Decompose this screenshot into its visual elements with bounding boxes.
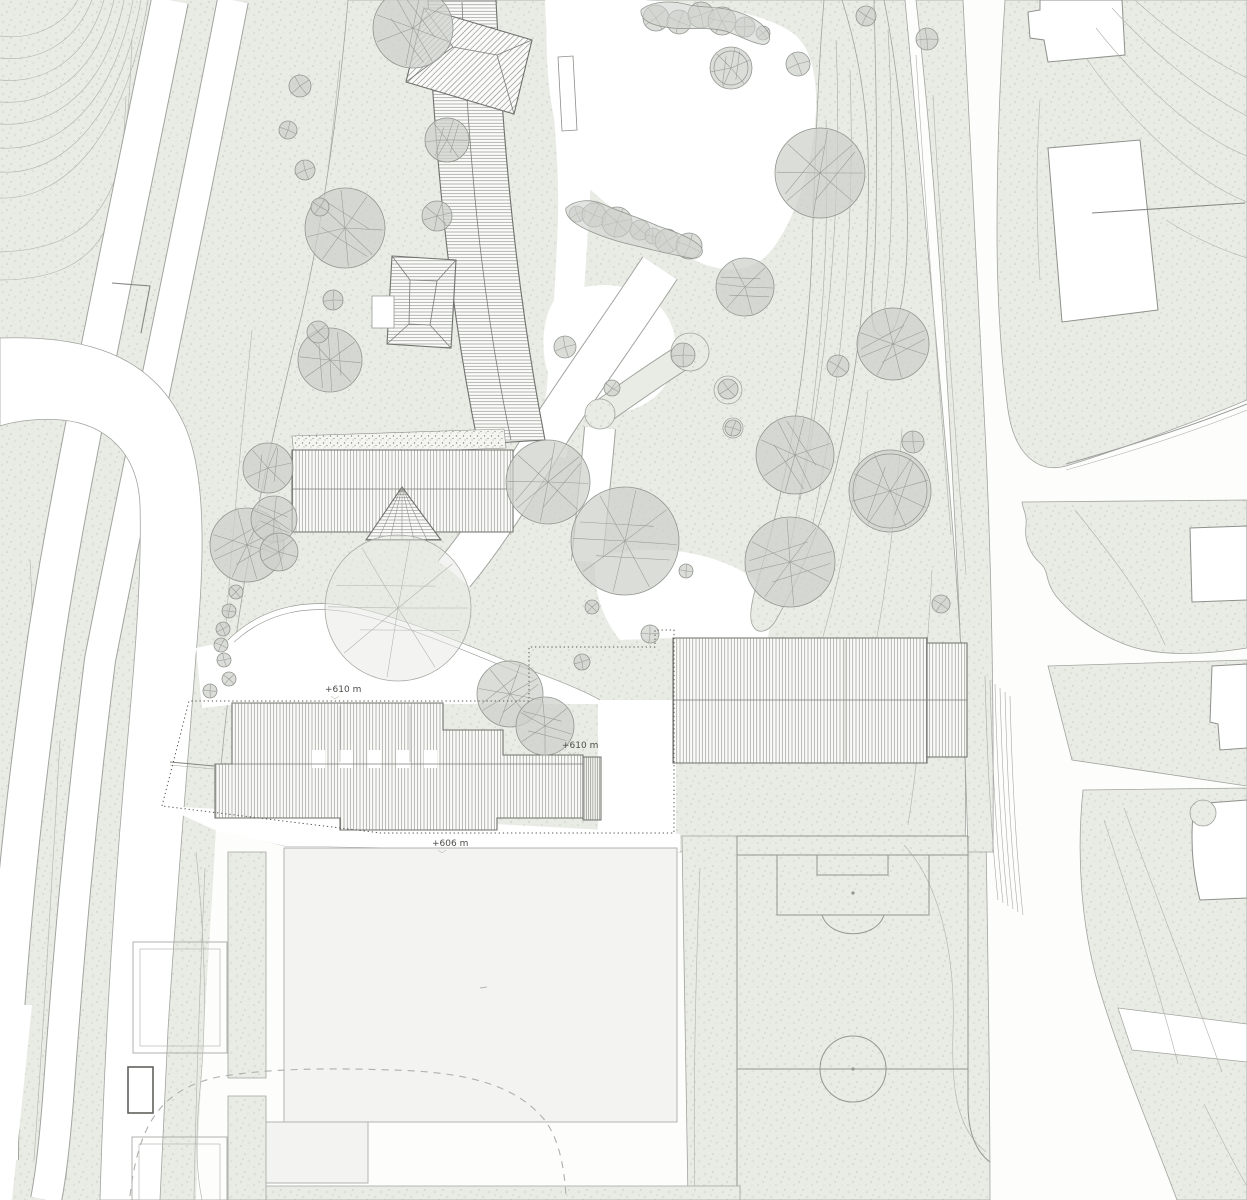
bush	[217, 653, 231, 667]
bush	[222, 672, 236, 686]
porch	[372, 296, 394, 328]
tree	[671, 343, 695, 367]
bush	[229, 585, 243, 599]
tree	[323, 290, 343, 310]
tree	[554, 336, 576, 358]
tree	[745, 517, 835, 607]
context-building-3	[1190, 526, 1247, 602]
building-gym-hall	[673, 638, 967, 763]
tree	[827, 355, 849, 377]
tree	[902, 431, 924, 453]
tree	[298, 328, 362, 392]
tree	[856, 6, 876, 26]
small-building-southwest	[128, 1067, 153, 1113]
field-green	[682, 836, 990, 1200]
elevation-label-3: +606 m	[432, 839, 468, 849]
bush	[932, 595, 950, 613]
bush	[279, 121, 297, 139]
playground-main	[284, 848, 677, 1122]
corridor-school-gym	[598, 700, 676, 834]
playground-annex	[263, 1122, 368, 1183]
court-green-strip-upper	[228, 852, 266, 1078]
elevation-label-2: +610 m	[562, 741, 598, 751]
bush	[222, 604, 236, 618]
bush	[203, 684, 217, 698]
tree	[307, 321, 329, 343]
elevation-label-1: +610 m	[325, 685, 361, 695]
tree	[849, 450, 931, 532]
court-green-strip-lower	[228, 1096, 266, 1200]
tree	[716, 258, 774, 316]
tree	[571, 487, 679, 595]
tree	[260, 533, 298, 571]
tree	[756, 416, 834, 494]
tree	[325, 535, 471, 681]
tree	[425, 118, 469, 162]
door-recess	[424, 750, 437, 768]
door-recess	[312, 750, 325, 768]
tree	[857, 308, 929, 380]
tree	[506, 440, 590, 524]
tree	[718, 379, 738, 399]
tree	[916, 28, 938, 50]
bush	[574, 654, 590, 670]
tree	[289, 75, 311, 97]
door-recess	[368, 750, 381, 768]
south-green-strip	[252, 1186, 740, 1200]
bush	[604, 380, 620, 396]
context-building-2	[1048, 140, 1158, 322]
tree	[775, 128, 865, 218]
door-recess	[396, 750, 409, 768]
tree	[243, 443, 293, 493]
penalty-spot	[851, 891, 854, 894]
bush	[641, 625, 659, 643]
door-recess	[340, 750, 353, 768]
bush	[679, 564, 693, 578]
bush	[725, 420, 741, 436]
bush	[585, 600, 599, 614]
site-plan-canvas: +610 m +610 m +606 m	[0, 0, 1247, 1200]
stair-annex	[583, 757, 601, 820]
site-plan-page: +610 m +610 m +606 m	[0, 0, 1247, 1200]
bush	[311, 198, 329, 216]
center-spot	[851, 1067, 854, 1070]
tree	[786, 52, 810, 76]
tree	[710, 47, 752, 89]
tree	[295, 160, 315, 180]
bush	[216, 622, 230, 636]
bush	[214, 638, 228, 652]
tree	[422, 201, 452, 231]
building-round-notch	[1190, 800, 1216, 826]
